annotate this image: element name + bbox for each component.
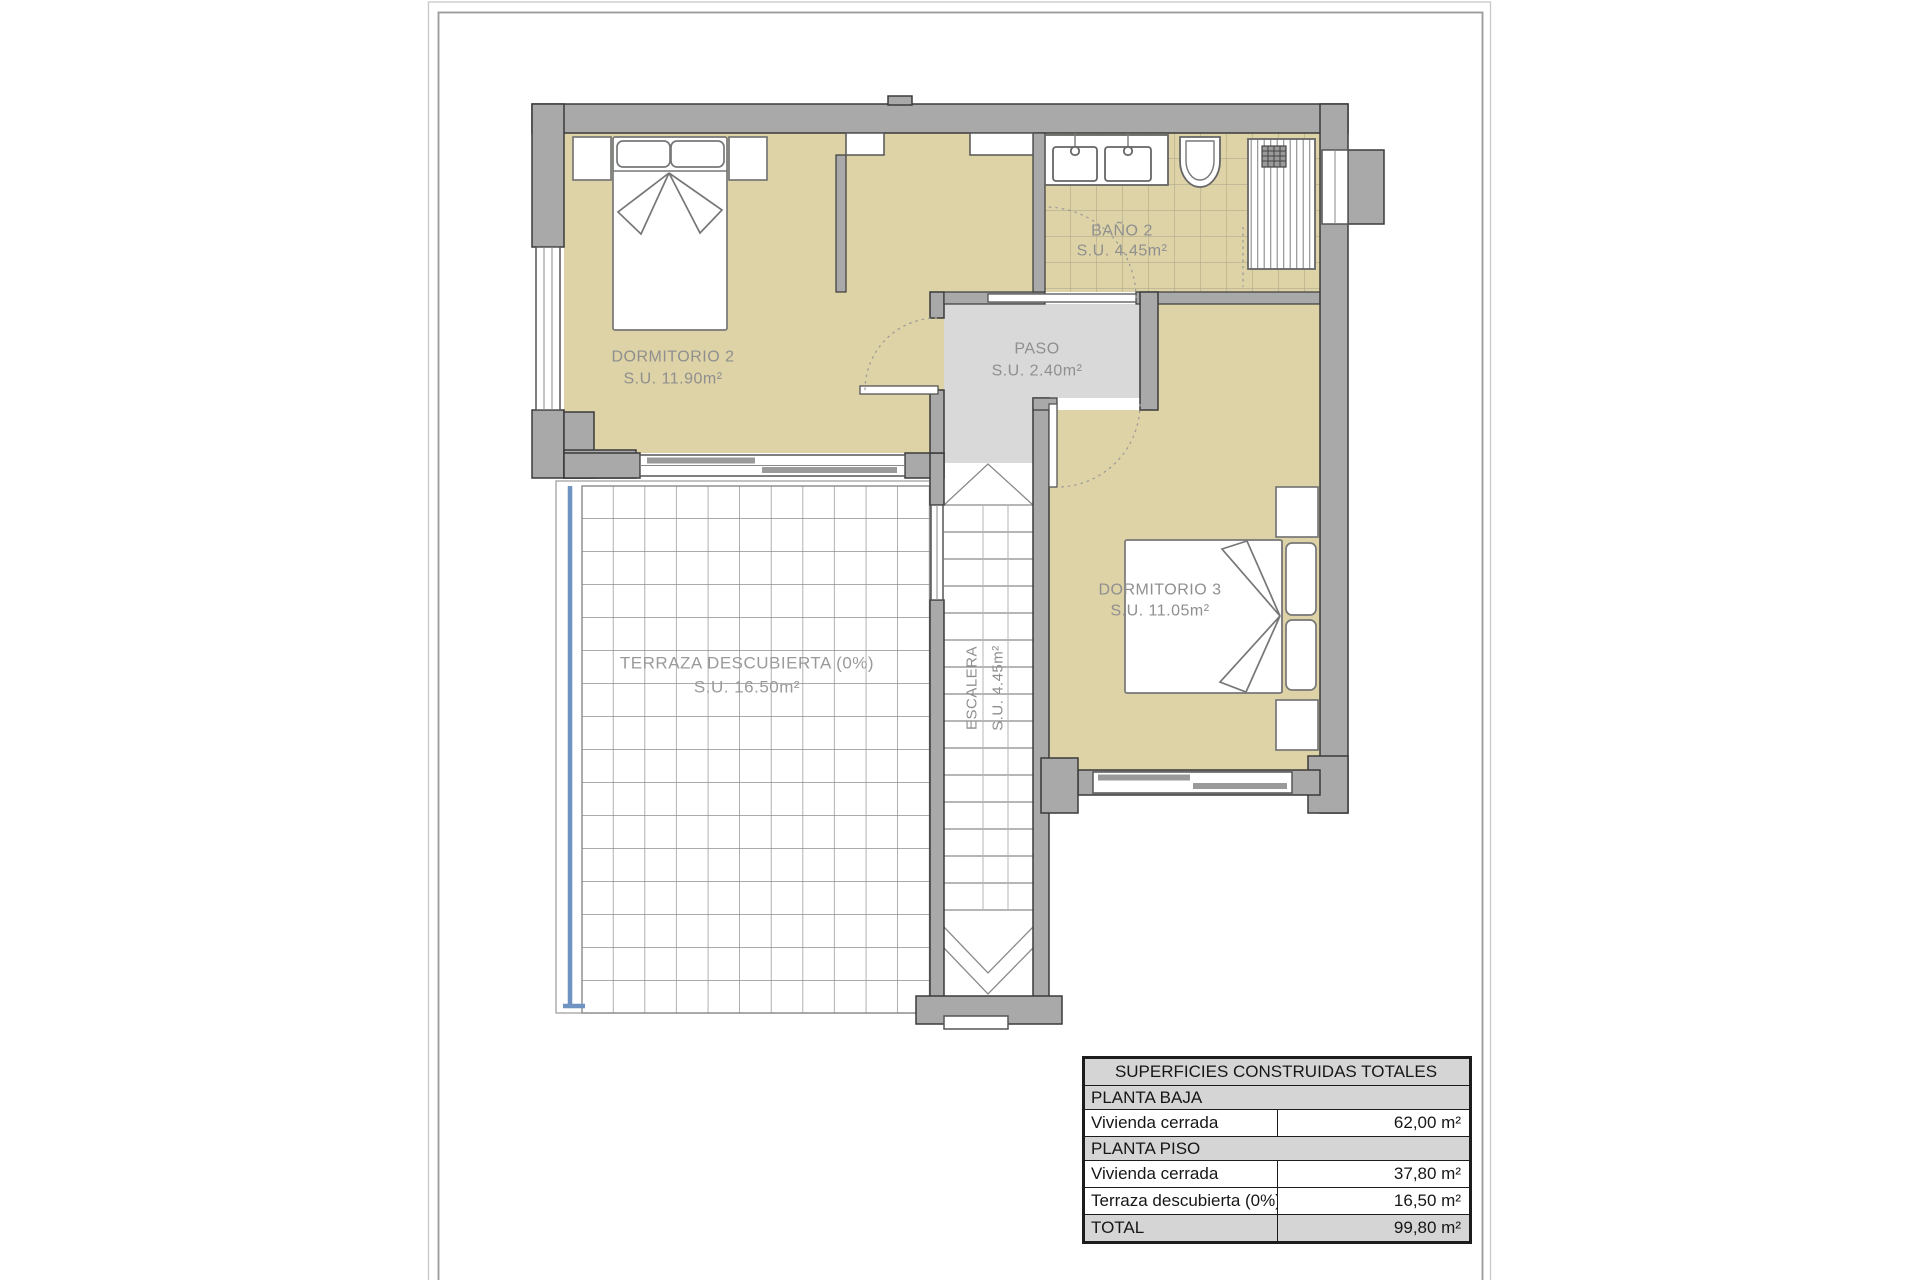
- closet-niche-left: [846, 133, 884, 155]
- dormitorio2-label: DORMITORIO 2: [611, 349, 734, 366]
- table-row: PLANTA PISO: [1084, 1137, 1470, 1161]
- top-wall-notch: [888, 96, 912, 105]
- shower-exterior-bump: [1348, 150, 1384, 224]
- terrace: [556, 481, 930, 1013]
- dorm2-paso-wall-upper: [930, 292, 944, 318]
- top-wall: [532, 104, 1348, 133]
- stair-bottom-cap: [944, 1016, 1008, 1029]
- row-value: 16,50 m²: [1277, 1188, 1470, 1215]
- window-stairwell: [931, 505, 943, 600]
- escalera-area: S.U. 4.45m²: [990, 645, 1007, 731]
- paso-area: S.U. 2.40m²: [992, 363, 1083, 380]
- window-bath-east: [1322, 150, 1348, 224]
- nightstand: [1276, 487, 1318, 537]
- row-label: Vivienda cerrada: [1084, 1161, 1277, 1188]
- surface-summary-table: SUPERFICIES CONSTRUIDAS TOTALES PLANTA B…: [1083, 1057, 1471, 1243]
- bath-south-wall: [1136, 292, 1320, 304]
- table-title-row: SUPERFICIES CONSTRUIDAS TOTALES: [1084, 1058, 1470, 1086]
- terrace-tile-grid: [582, 486, 930, 1013]
- paso-dorm3-divider: [1140, 292, 1158, 410]
- row-value: 37,80 m²: [1277, 1161, 1470, 1188]
- dormitorio3-label: DORMITORIO 3: [1098, 582, 1221, 599]
- closet-niche-right: [970, 133, 1033, 155]
- left-wall-upper: [532, 104, 564, 247]
- dorm2-closet-partition: [836, 155, 846, 292]
- dormitorio3-area: S.U. 11.05m²: [1110, 603, 1209, 620]
- nightstand: [573, 137, 611, 180]
- table-row: PLANTA BAJA: [1084, 1086, 1470, 1110]
- pillow: [671, 141, 724, 167]
- table-title: SUPERFICIES CONSTRUIDAS TOTALES: [1084, 1058, 1470, 1086]
- table-row: Terraza descubierta (0%) 16,50 m²: [1084, 1188, 1470, 1215]
- shower: [1248, 139, 1315, 269]
- window-dorm3-south: [1093, 772, 1292, 793]
- pillow: [617, 141, 670, 167]
- table-total-row: TOTAL 99,80 m²: [1084, 1215, 1470, 1243]
- stair-east-wall: [1033, 398, 1049, 1016]
- total-label: TOTAL: [1084, 1215, 1277, 1243]
- row-label: Vivienda cerrada: [1084, 1110, 1277, 1137]
- dorm2-south-wall-left: [564, 453, 640, 478]
- pillow: [1286, 620, 1316, 690]
- drawing-sheet: DORMITORIO 2 S.U. 11.90m² BAÑO 2 S.U. 4.…: [0, 0, 1920, 1280]
- terraza-area: S.U. 16.50m²: [694, 678, 800, 697]
- window-dorm2-south: [640, 455, 905, 476]
- nightstand: [729, 137, 767, 180]
- bano2-area: S.U. 4.45m²: [1077, 243, 1168, 260]
- stair-west-wall-upper: [930, 453, 944, 505]
- dorm3-south-corner-block: [1041, 758, 1078, 813]
- paso-label: PASO: [1014, 341, 1059, 358]
- dormitorio2-area: S.U. 11.90m²: [623, 371, 722, 388]
- section-label: PLANTA PISO: [1084, 1137, 1470, 1161]
- stair-floor: [944, 463, 1033, 996]
- toilet: [1180, 137, 1220, 187]
- dorm2-paso-wall-lower: [930, 390, 944, 453]
- bath-west-wall: [1033, 133, 1045, 292]
- window-west: [536, 247, 560, 410]
- bano2-label: BAÑO 2: [1091, 220, 1153, 240]
- total-value: 99,80 m²: [1277, 1215, 1470, 1243]
- row-label: Terraza descubierta (0%): [1084, 1188, 1277, 1215]
- stair-west-wall-lower: [930, 600, 944, 1016]
- row-value: 62,00 m²: [1277, 1110, 1470, 1137]
- nightstand: [1276, 700, 1318, 750]
- section-label: PLANTA BAJA: [1084, 1086, 1470, 1110]
- pillow: [1286, 543, 1316, 615]
- table-row: Vivienda cerrada 37,80 m²: [1084, 1161, 1470, 1188]
- table-row: Vivienda cerrada 62,00 m²: [1084, 1110, 1470, 1137]
- left-wall-lower: [532, 410, 564, 478]
- terraza-label: TERRAZA DESCUBIERTA (0%): [620, 654, 874, 673]
- floor-plan: DORMITORIO 2 S.U. 11.90m² BAÑO 2 S.U. 4.…: [0, 0, 1920, 1280]
- escalera-label: ESCALERA: [964, 646, 981, 730]
